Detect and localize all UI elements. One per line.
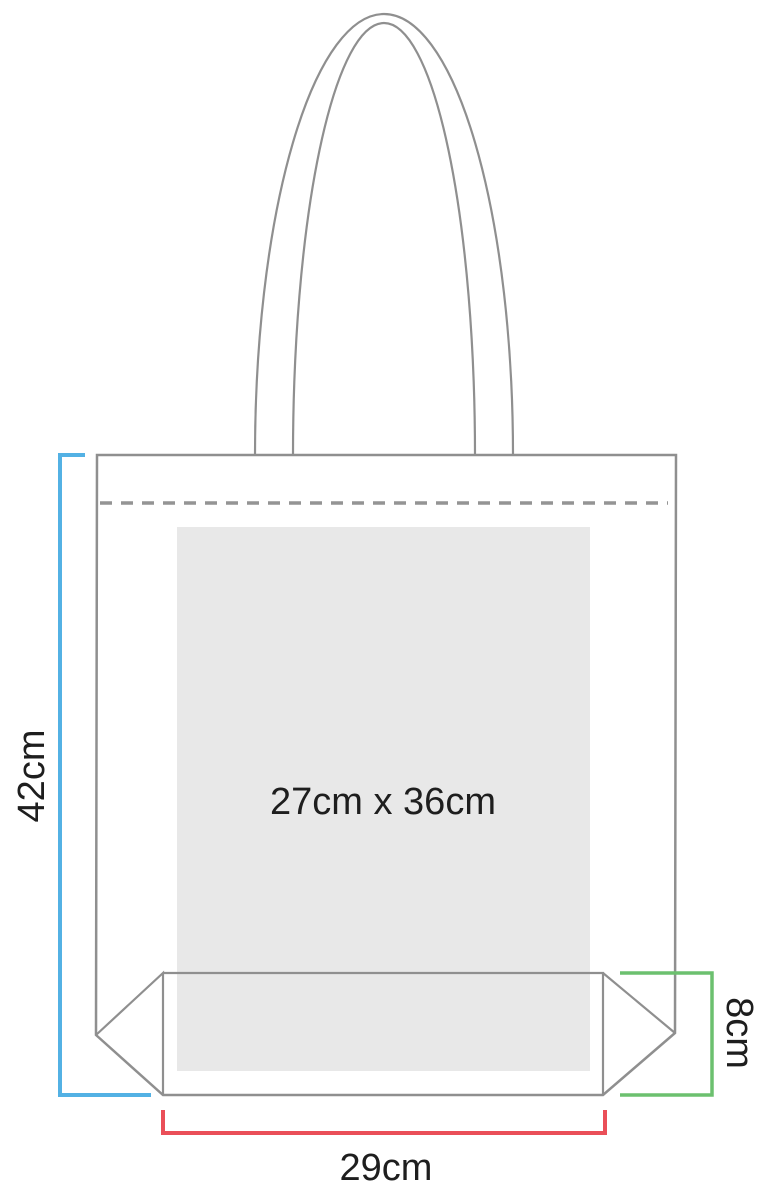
width-dimension-label: 29cm bbox=[340, 1147, 433, 1189]
height-dimension-label: 42cm bbox=[11, 730, 53, 823]
bag-handle bbox=[255, 14, 513, 455]
gusset-dimension-label: 8cm bbox=[718, 997, 760, 1069]
width-dimension-line bbox=[163, 1110, 605, 1133]
print-area-label: 27cm x 36cm bbox=[270, 781, 496, 823]
diagram-canvas: 27cm x 36cm 42cm 29cm 8cm bbox=[0, 0, 771, 1200]
tote-bag-dimension-diagram: 27cm x 36cm 42cm 29cm 8cm bbox=[0, 0, 771, 1200]
gusset-dimension-line bbox=[620, 973, 712, 1095]
height-dimension-line bbox=[60, 455, 151, 1095]
